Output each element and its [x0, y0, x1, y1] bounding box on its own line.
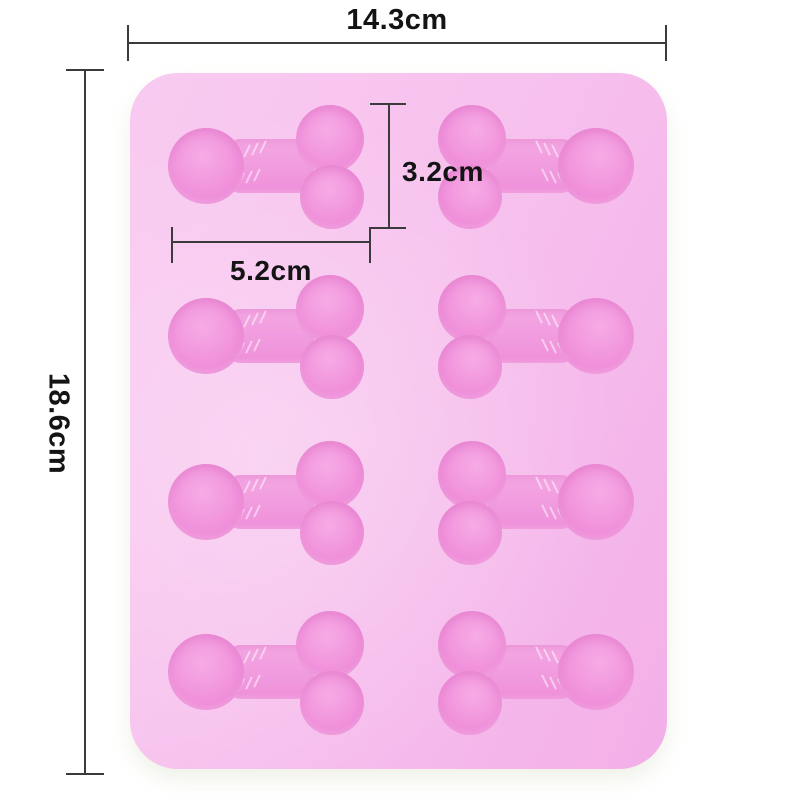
cavity-vein	[551, 314, 559, 327]
cavity-vein	[245, 506, 253, 519]
cavity-vein	[535, 310, 543, 323]
mold-cavity	[430, 441, 634, 563]
cavity-ball-top	[296, 105, 364, 173]
cavity-vein	[245, 170, 253, 183]
cavity-height-dimension-label: 3.2cm	[402, 156, 484, 188]
cavity-ball-bottom	[300, 165, 364, 229]
cavity-vein	[551, 480, 559, 493]
cavity-ball-bottom	[438, 335, 502, 399]
cavity-vein	[541, 504, 549, 517]
cavity-vein	[243, 480, 251, 493]
cavity-ball-top	[296, 611, 364, 679]
cavity-vein	[253, 338, 261, 351]
cavity-vein	[259, 646, 267, 659]
cavity-tip	[558, 298, 634, 374]
cavity-vein	[243, 144, 251, 157]
height-dimension-tick-top	[66, 69, 104, 71]
mold-cavity	[168, 441, 372, 563]
cavity-length-tick-left	[171, 227, 173, 263]
cavity-length-dimension-label: 5.2cm	[201, 255, 341, 287]
cavity-vein	[251, 478, 259, 491]
cavity-vein	[549, 340, 557, 353]
cavity-vein	[535, 476, 543, 489]
cavity-height-dimension-line	[388, 104, 390, 228]
cavity-vein	[543, 648, 551, 661]
cavity-length-tick-right	[369, 227, 371, 263]
cavity-ball-bottom	[300, 501, 364, 565]
cavity-tip	[168, 634, 244, 710]
cavity-ball-bottom	[300, 335, 364, 399]
cavity-tip	[168, 128, 244, 204]
cavity-ball-top	[438, 611, 506, 679]
mold-cavity	[430, 275, 634, 397]
width-dimension-tick-left	[127, 25, 129, 61]
cavity-vein	[541, 338, 549, 351]
cavity-vein	[253, 674, 261, 687]
cavity-vein	[243, 650, 251, 663]
cavity-vein	[259, 140, 267, 153]
height-dimension-tick-bottom	[66, 773, 104, 775]
cavity-ball-bottom	[438, 671, 502, 735]
cavity-ball-top	[296, 441, 364, 509]
mold-cavity	[430, 611, 634, 733]
width-dimension-tick-right	[665, 25, 667, 61]
cavity-tip	[558, 128, 634, 204]
cavity-vein	[251, 142, 259, 155]
height-dimension-label: 18.6cm	[42, 356, 75, 492]
cavity-vein	[253, 504, 261, 517]
cavity-vein	[253, 168, 261, 181]
cavity-height-tick-bottom	[370, 227, 406, 229]
cavity-tip	[168, 464, 244, 540]
cavity-tip	[558, 634, 634, 710]
cavity-height-tick-top	[370, 103, 406, 105]
cavity-ball-bottom	[438, 501, 502, 565]
cavity-vein	[259, 310, 267, 323]
cavity-vein	[551, 650, 559, 663]
cavity-tip	[168, 298, 244, 374]
mold-cavity	[168, 611, 372, 733]
cavity-vein	[245, 340, 253, 353]
cavity-vein	[551, 144, 559, 157]
cavity-vein	[251, 648, 259, 661]
cavity-ball-top	[438, 441, 506, 509]
cavity-vein	[541, 168, 549, 181]
cavity-vein	[245, 676, 253, 689]
cavity-ball-bottom	[300, 671, 364, 735]
cavity-vein	[543, 142, 551, 155]
cavity-vein	[549, 170, 557, 183]
cavity-vein	[549, 506, 557, 519]
height-dimension-line	[84, 70, 86, 774]
cavity-vein	[535, 646, 543, 659]
cavity-vein	[543, 478, 551, 491]
mold-cavity	[168, 275, 372, 397]
cavity-vein	[543, 312, 551, 325]
width-dimension-label: 14.3cm	[327, 4, 467, 37]
cavity-vein	[259, 476, 267, 489]
cavity-length-dimension-line	[172, 241, 370, 243]
cavity-vein	[541, 674, 549, 687]
cavity-ball-top	[438, 275, 506, 343]
cavity-tip	[558, 464, 634, 540]
mold-cavity	[168, 105, 372, 227]
cavity-vein	[549, 676, 557, 689]
cavity-vein	[251, 312, 259, 325]
cavity-vein	[243, 314, 251, 327]
width-dimension-line	[128, 42, 666, 44]
product-photo: 14.3cm 18.6cm	[0, 0, 800, 800]
cavity-vein	[535, 140, 543, 153]
